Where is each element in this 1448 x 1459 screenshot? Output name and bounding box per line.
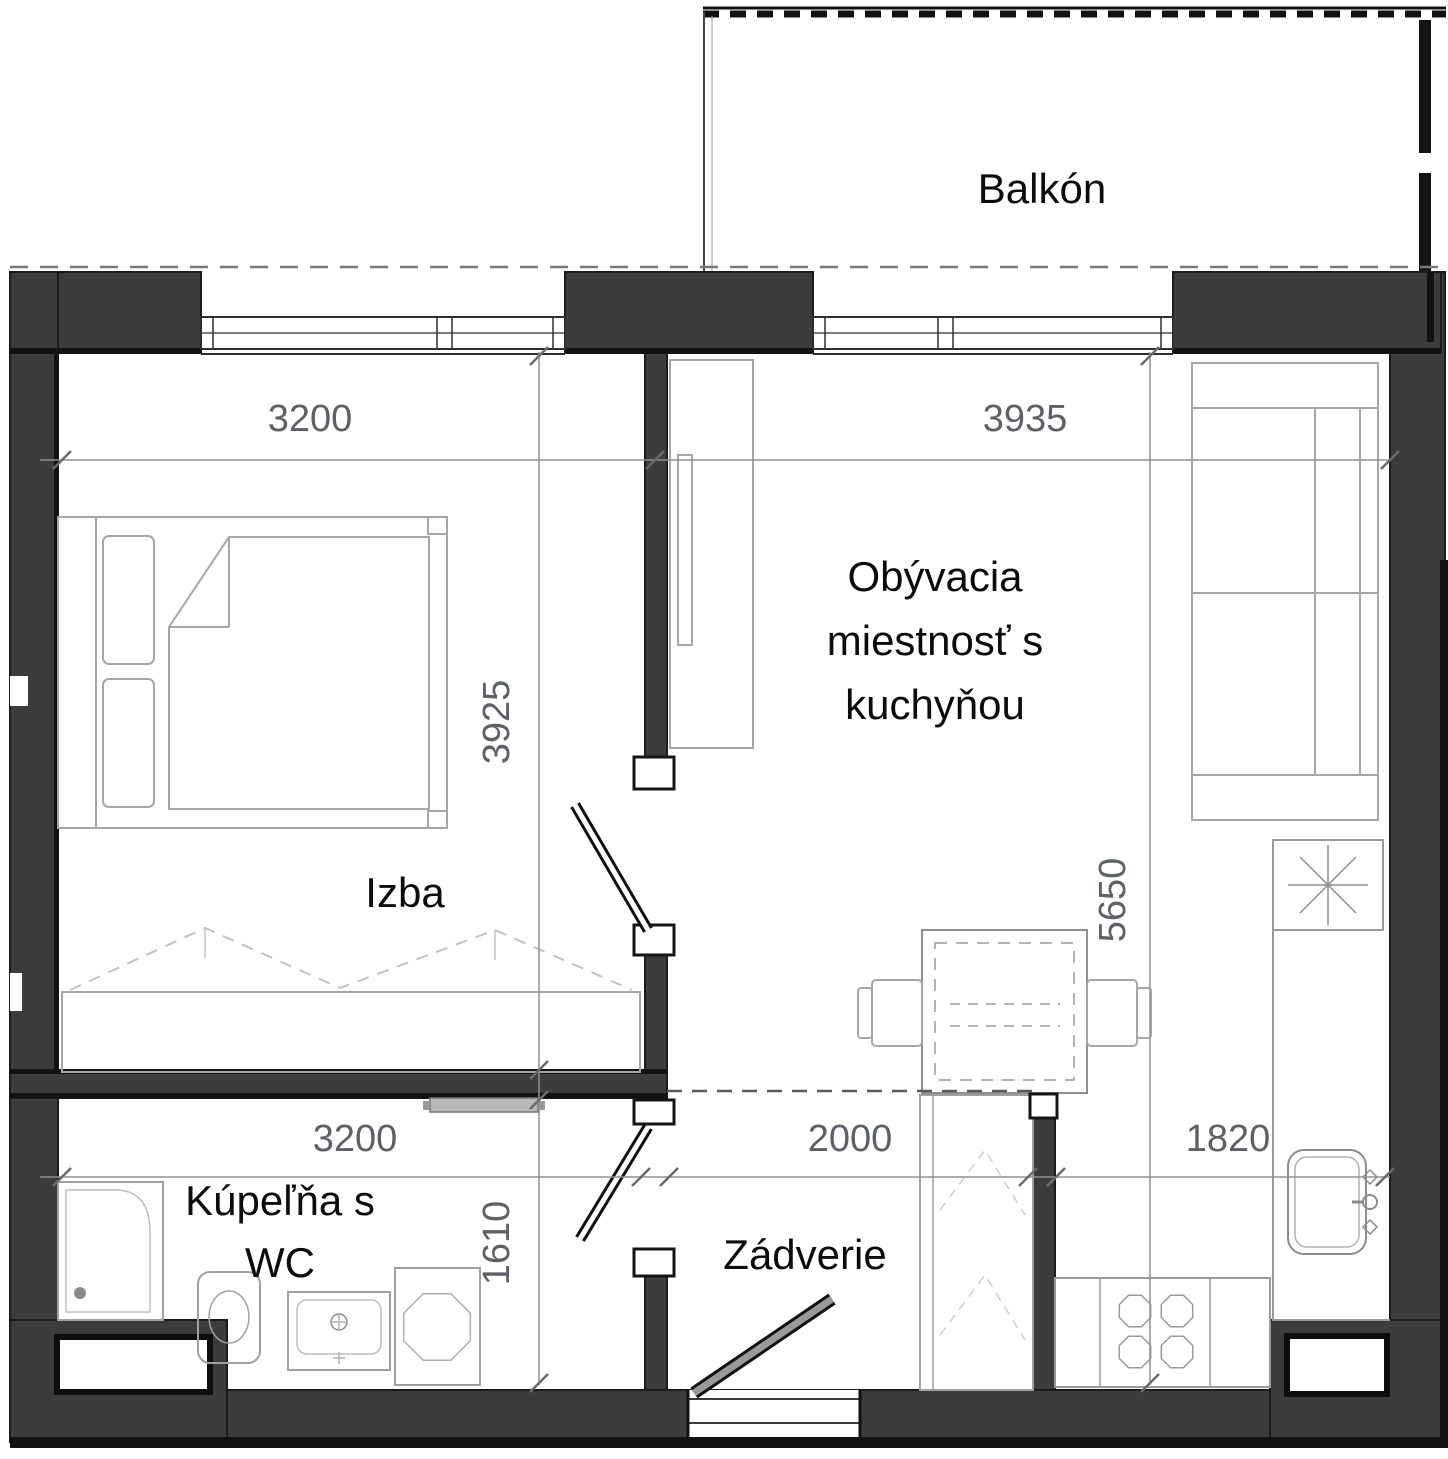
sofa [1192, 363, 1378, 820]
hall-closet [920, 1095, 1033, 1390]
bed [58, 517, 447, 828]
room-label-bathroom-line1: Kúpeľňa s [150, 1170, 410, 1232]
door-entry [694, 1299, 832, 1393]
room-label-living-line3: kuchyňou [765, 673, 1105, 737]
door-frames [634, 757, 1057, 1276]
wall-top-right [1173, 272, 1441, 352]
room-label-living-line1: Obývacia [765, 545, 1105, 609]
door-bedroom [575, 805, 648, 930]
shower-drain [74, 1287, 86, 1299]
dim-bathroom-width: 3200 [275, 1118, 435, 1161]
window-bedroom [201, 317, 565, 354]
wall-right [1390, 272, 1445, 1390]
room-label-bathroom-line2: WC [150, 1232, 410, 1294]
shower [58, 1182, 163, 1320]
wall-partition-upper [645, 352, 667, 759]
washbasin [288, 1292, 390, 1370]
room-label-living: Obývacia miestnosť s kuchyňou [765, 545, 1105, 737]
dim-bedroom-width: 3200 [230, 398, 390, 441]
room-label-hall: Zádverie [680, 1232, 930, 1278]
window-living [813, 317, 1173, 354]
wall-top-middle [565, 272, 813, 352]
bathroom-radiator [423, 1098, 545, 1112]
bottom-outer-edge [10, 1437, 1448, 1448]
wall-hall-living [1033, 1093, 1055, 1392]
entry-opening [688, 1390, 860, 1437]
pillow [103, 536, 154, 664]
kitchen-sink [1288, 1150, 1377, 1254]
room-label-balcony: Balkón [892, 166, 1192, 212]
dim-living-depth: 5650 [1092, 815, 1136, 985]
bedroom-wardrobe [62, 928, 640, 1072]
room-label-bedroom: Izba [320, 870, 490, 916]
balcony-structure [703, 8, 1446, 272]
blanket [169, 537, 429, 809]
dim-kitchen-width: 1820 [1148, 1118, 1308, 1161]
wall-bathroom-hall-lower [645, 1274, 667, 1392]
room-label-living-line2: miestnosť s [765, 609, 1105, 673]
dining-chair-left [858, 980, 922, 1046]
dim-bathroom-depth: 1610 [476, 1158, 520, 1328]
balcony-rail-right [1419, 20, 1431, 272]
niche-bottom-right [1287, 1336, 1387, 1394]
room-label-bathroom: Kúpeľňa s WC [150, 1170, 410, 1294]
niche-bottom-left [57, 1337, 210, 1392]
dining-table [922, 930, 1087, 1093]
dim-living-width: 3935 [940, 398, 1110, 441]
wall-left [10, 272, 58, 1390]
living-wardrobe [670, 360, 753, 748]
door-bathroom [580, 1127, 648, 1239]
dim-bedroom-depth: 3925 [476, 637, 520, 807]
dim-hall-width: 2000 [770, 1118, 930, 1161]
pillow [103, 679, 154, 807]
floor-plan: Balkón Izba Obývacia miestnosť s kuchyňo… [0, 0, 1448, 1459]
dining-chair-right [1087, 980, 1151, 1046]
